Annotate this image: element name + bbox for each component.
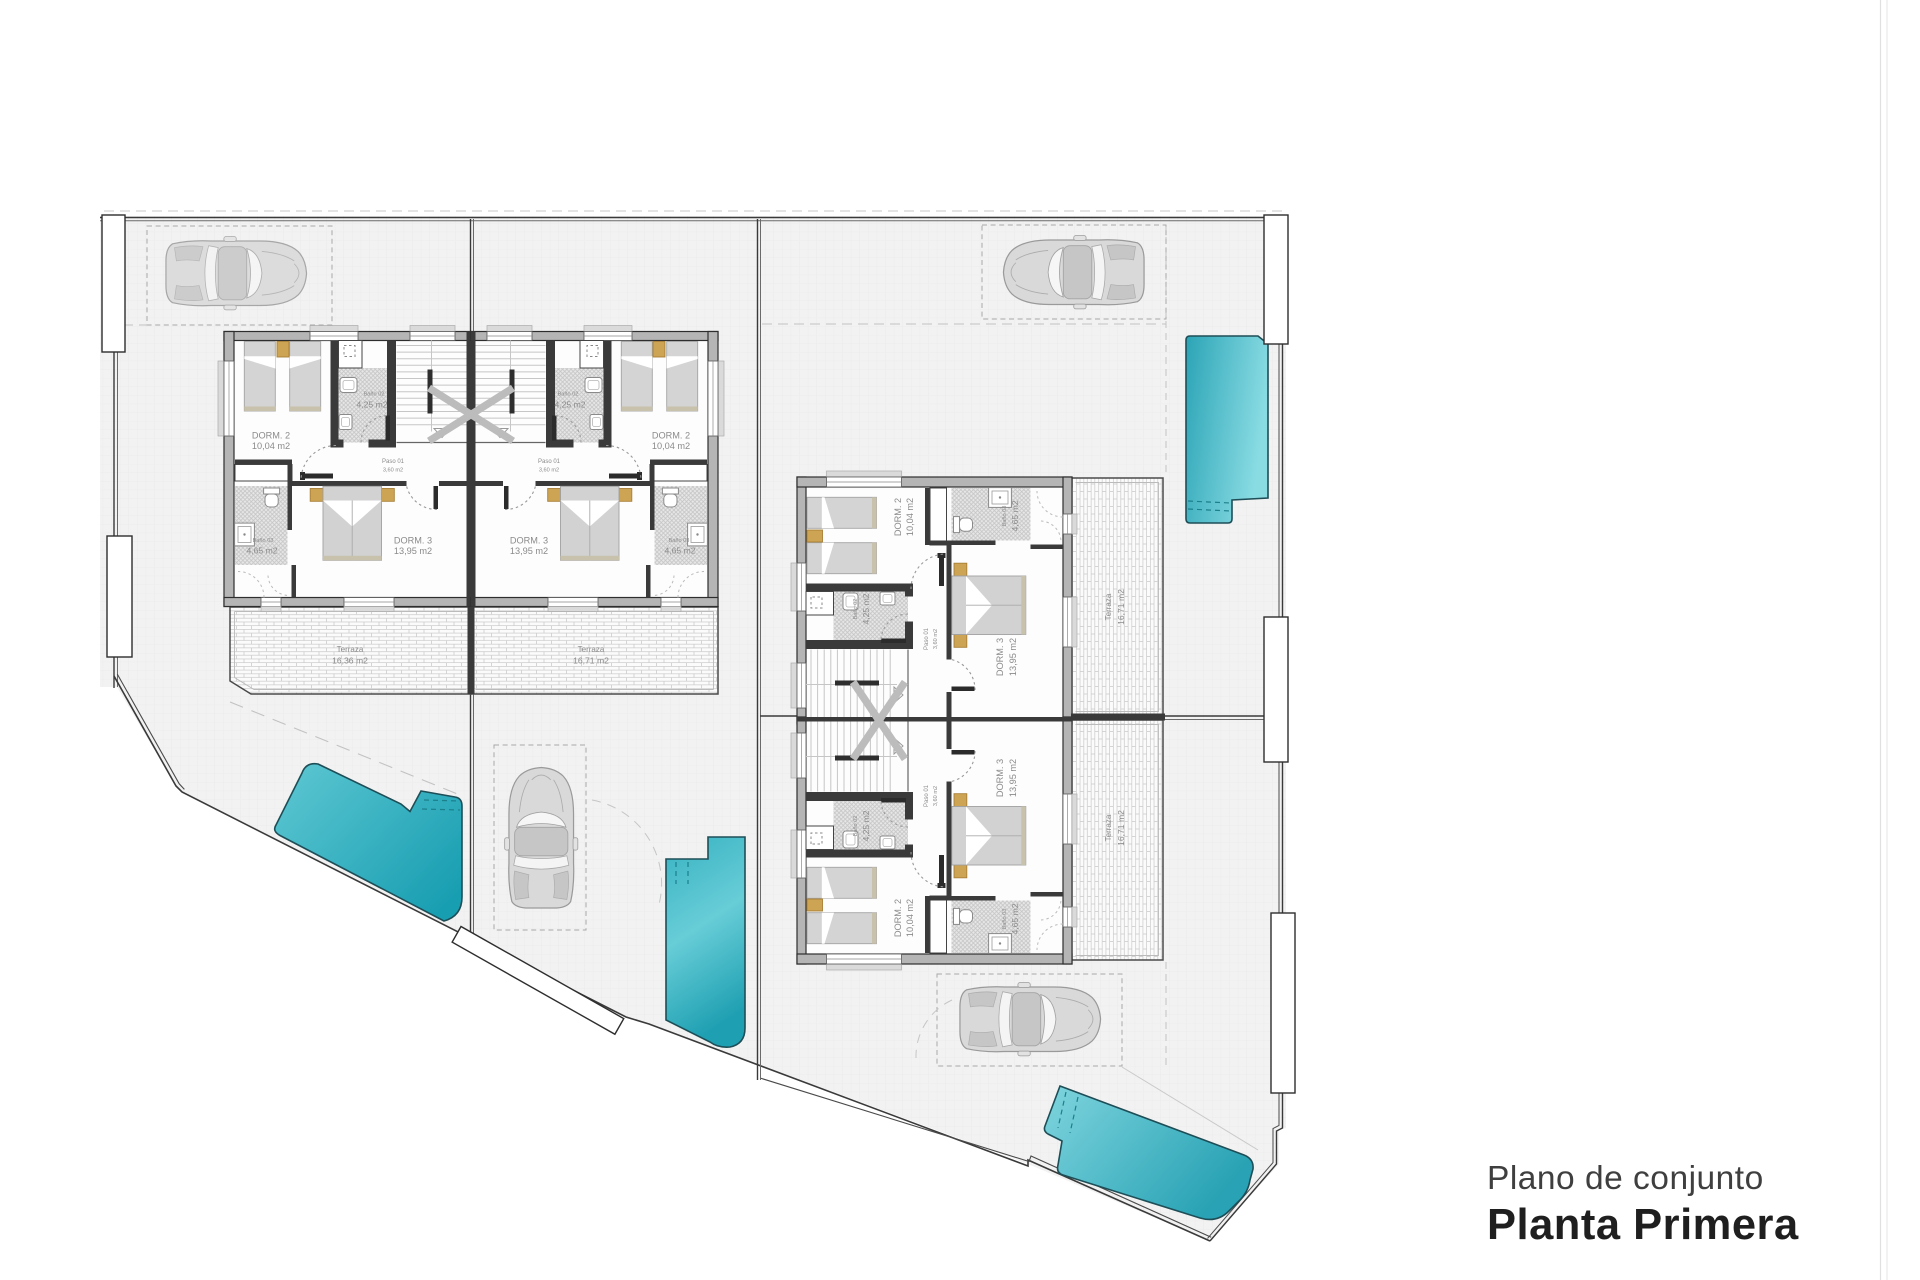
- svg-text:Baño 02: Baño 02: [364, 392, 385, 398]
- svg-text:Baño 03: Baño 03: [669, 538, 690, 544]
- svg-text:Planta Primera: Planta Primera: [1487, 1201, 1799, 1249]
- svg-text:DORM. 3: DORM. 3: [394, 536, 432, 546]
- svg-text:DORM. 3: DORM. 3: [995, 638, 1005, 676]
- svg-text:Terraza: Terraza: [1104, 593, 1113, 620]
- svg-text:4,25 m2: 4,25 m2: [861, 810, 871, 841]
- svg-text:16,71 m2: 16,71 m2: [573, 656, 609, 666]
- svg-text:3,60 m2: 3,60 m2: [383, 468, 403, 474]
- svg-text:3,60 m2: 3,60 m2: [933, 629, 939, 649]
- svg-text:Terraza: Terraza: [578, 645, 605, 654]
- svg-text:10,04 m2: 10,04 m2: [905, 899, 915, 937]
- svg-text:16,36 m2: 16,36 m2: [332, 656, 368, 666]
- svg-text:Paso 01: Paso 01: [382, 459, 405, 465]
- svg-text:13,95 m2: 13,95 m2: [1008, 759, 1018, 797]
- svg-text:4,25 m2: 4,25 m2: [861, 593, 871, 624]
- svg-text:Plano de conjunto: Plano de conjunto: [1487, 1160, 1764, 1197]
- svg-text:4,25 m2: 4,25 m2: [356, 400, 387, 410]
- svg-text:13,95 m2: 13,95 m2: [1008, 638, 1018, 676]
- svg-text:4,65 m2: 4,65 m2: [664, 546, 695, 556]
- svg-text:DORM. 3: DORM. 3: [510, 536, 548, 546]
- svg-text:Terraza: Terraza: [1104, 814, 1113, 841]
- svg-text:Baño 03: Baño 03: [253, 538, 274, 544]
- svg-text:13,95 m2: 13,95 m2: [510, 546, 548, 556]
- svg-text:3,60 m2: 3,60 m2: [539, 468, 559, 474]
- svg-text:4,65 m2: 4,65 m2: [1010, 500, 1020, 531]
- svg-text:Paso 01: Paso 01: [924, 627, 930, 650]
- svg-text:Baño 02: Baño 02: [853, 599, 859, 620]
- svg-text:Paso 01: Paso 01: [924, 784, 930, 807]
- svg-text:13,95 m2: 13,95 m2: [394, 546, 432, 556]
- svg-text:4,65 m2: 4,65 m2: [1010, 903, 1020, 934]
- svg-text:DORM. 2: DORM. 2: [252, 431, 290, 441]
- svg-text:4,25 m2: 4,25 m2: [554, 400, 585, 410]
- svg-text:10,04 m2: 10,04 m2: [905, 498, 915, 536]
- svg-text:10,04 m2: 10,04 m2: [652, 441, 690, 451]
- svg-text:16,71 m2: 16,71 m2: [1116, 810, 1126, 846]
- svg-text:DORM. 3: DORM. 3: [995, 759, 1005, 797]
- svg-text:3,60 m2: 3,60 m2: [933, 786, 939, 806]
- svg-text:Baño 03: Baño 03: [1002, 909, 1008, 930]
- svg-text:Baño 02: Baño 02: [558, 392, 579, 398]
- svg-text:4,65 m2: 4,65 m2: [246, 546, 277, 556]
- svg-text:DORM. 2: DORM. 2: [893, 899, 903, 937]
- svg-text:Paso 01: Paso 01: [538, 459, 561, 465]
- svg-text:DORM. 2: DORM. 2: [893, 498, 903, 536]
- svg-text:16,71 m2: 16,71 m2: [1116, 589, 1126, 625]
- svg-text:Terraza: Terraza: [337, 645, 364, 654]
- svg-text:DORM. 2: DORM. 2: [652, 431, 690, 441]
- svg-text:10,04 m2: 10,04 m2: [252, 441, 290, 451]
- svg-text:Baño 03: Baño 03: [1002, 506, 1008, 527]
- svg-text:Baño 02: Baño 02: [853, 816, 859, 837]
